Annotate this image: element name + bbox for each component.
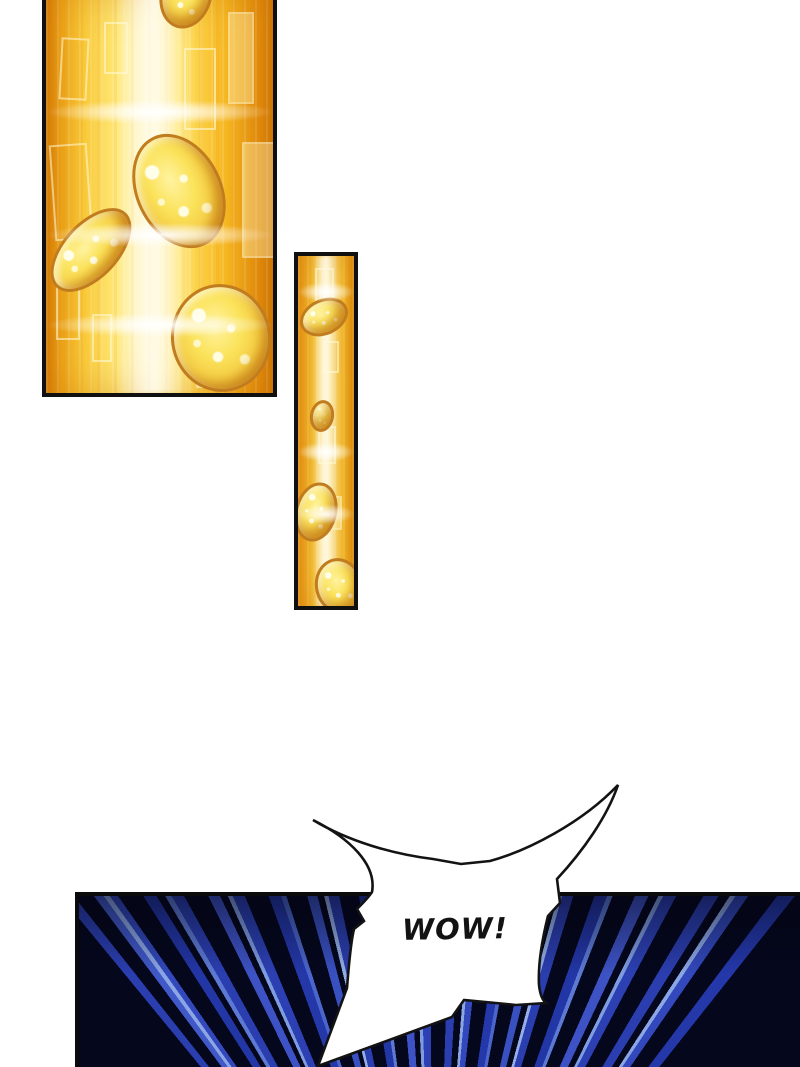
shout-bubble bbox=[0, 0, 800, 1067]
bubble-text: WOW! bbox=[383, 906, 528, 953]
comic-page: WOW! bbox=[0, 0, 800, 1067]
